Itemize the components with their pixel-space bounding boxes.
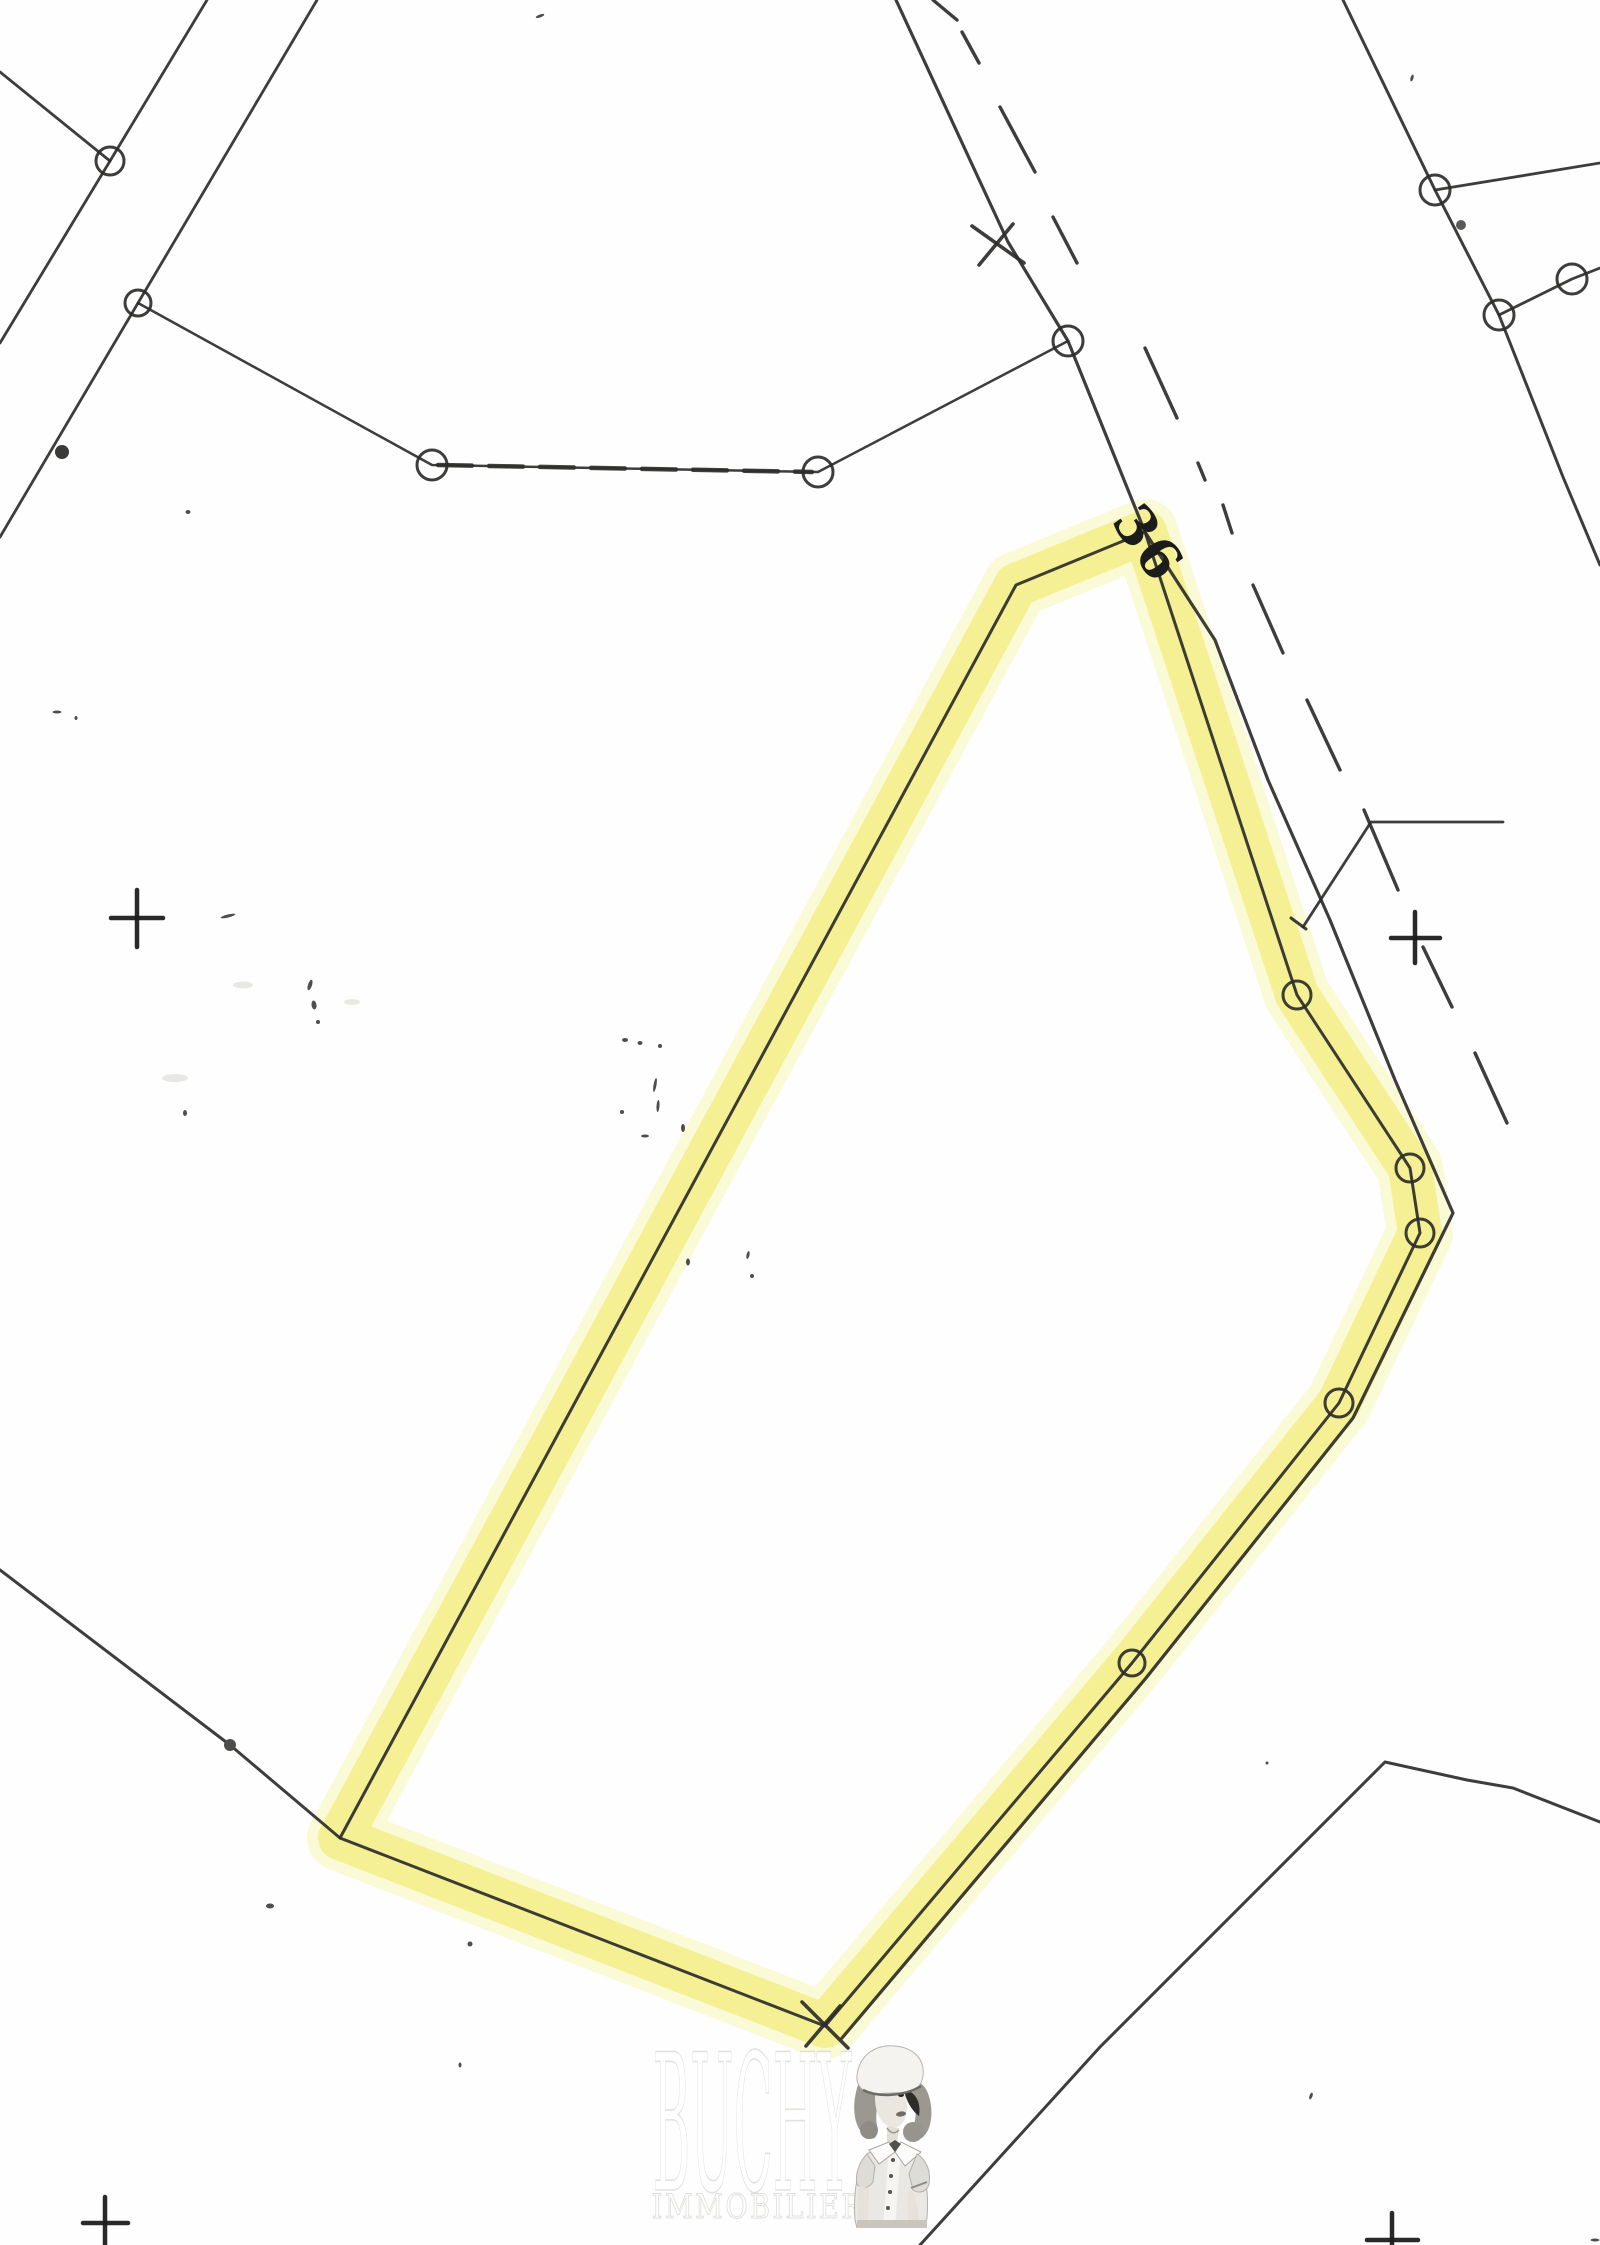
northwest-line-b xyxy=(0,72,110,161)
boundary-dot xyxy=(224,1739,236,1751)
speck xyxy=(183,1110,187,1116)
road-dash-3 xyxy=(1000,107,1035,172)
speck xyxy=(658,1044,662,1048)
speck xyxy=(686,1259,690,1266)
north-chain-line xyxy=(138,303,1068,472)
speck xyxy=(1591,2239,1600,2242)
speck xyxy=(641,1135,649,1138)
ink-blob xyxy=(55,445,69,459)
speck xyxy=(1266,1762,1269,1765)
speck xyxy=(186,510,191,514)
road-edge-line xyxy=(842,0,1453,2038)
speck xyxy=(652,1078,657,1092)
speck xyxy=(1308,2092,1313,2100)
northeast-line-a xyxy=(1343,0,1600,565)
speck xyxy=(750,1274,754,1278)
road-dash-12 xyxy=(1475,1053,1507,1123)
speck xyxy=(220,913,235,920)
speck xyxy=(306,979,313,991)
boundary-dot xyxy=(1456,220,1466,230)
north-chain-dashes xyxy=(438,465,812,472)
road-dash-7 xyxy=(1223,505,1232,533)
speck xyxy=(681,1124,685,1132)
smudge xyxy=(162,1074,188,1082)
road-dash-9 xyxy=(1307,700,1340,770)
speck xyxy=(266,1904,274,1909)
speck xyxy=(468,1942,473,1947)
northeast-line-c xyxy=(1499,268,1600,315)
road-dash-1 xyxy=(933,0,957,20)
woman-illustration xyxy=(843,2042,939,2228)
northeast-line-b xyxy=(1435,163,1600,190)
speck xyxy=(53,711,62,714)
watermark-line2: IMMOBILIER xyxy=(652,2187,864,2227)
speck xyxy=(75,716,78,720)
road-dash-11 xyxy=(1423,947,1452,1007)
road-dash-4 xyxy=(1053,217,1077,263)
road-dash-6 xyxy=(1198,463,1205,480)
speck xyxy=(622,1038,628,1042)
speck xyxy=(620,1110,624,1114)
vintage-woman-drawing xyxy=(854,2046,931,2228)
speck xyxy=(535,13,544,19)
road-dash-8 xyxy=(1253,585,1283,653)
northwest-line-a xyxy=(0,0,207,343)
speck xyxy=(316,1020,320,1024)
speck xyxy=(638,1041,643,1045)
cadastral-map: BUCHYIMMOBILIER 36 xyxy=(0,0,1600,2245)
speck xyxy=(311,1000,317,1010)
leader-callout-line xyxy=(1303,822,1503,927)
map-linework-layer: BUCHYIMMOBILIER xyxy=(0,0,1600,2245)
speck xyxy=(656,1100,660,1112)
speck xyxy=(1410,74,1415,82)
speck xyxy=(459,2063,462,2068)
road-dash-2 xyxy=(962,32,979,63)
road-dash-5 xyxy=(1145,348,1177,418)
smudge xyxy=(344,999,360,1005)
speck xyxy=(746,1251,751,1259)
smudge xyxy=(233,982,253,989)
west-approach-line xyxy=(0,1570,340,1838)
